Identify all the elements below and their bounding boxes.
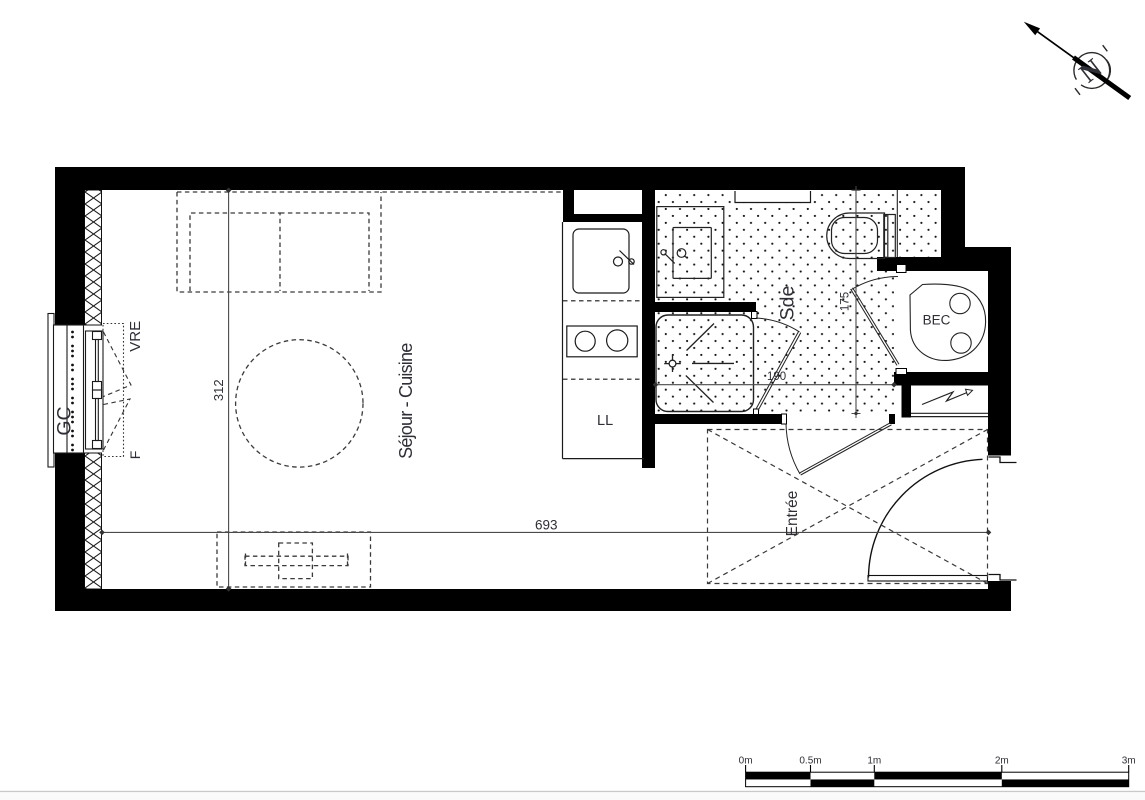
- svg-text:VRE: VRE: [127, 321, 144, 352]
- svg-text:1m: 1m: [867, 756, 881, 767]
- svg-text:190: 190: [767, 371, 786, 383]
- svg-text:Entrée: Entrée: [784, 491, 801, 537]
- svg-text:LL: LL: [597, 413, 613, 429]
- svg-text:2m: 2m: [995, 756, 1009, 767]
- svg-text:Séjour - Cuisine: Séjour - Cuisine: [396, 343, 416, 459]
- svg-text:693: 693: [535, 518, 558, 533]
- svg-text:312: 312: [211, 379, 226, 401]
- svg-text:GC: GC: [54, 406, 76, 435]
- svg-text:F: F: [127, 451, 143, 460]
- svg-text:BEC: BEC: [923, 313, 951, 328]
- svg-text:0.5m: 0.5m: [799, 756, 821, 767]
- svg-text:Sde: Sde: [777, 286, 799, 321]
- svg-text:3m: 3m: [1122, 756, 1136, 767]
- svg-text:175: 175: [840, 292, 852, 311]
- svg-text:0m: 0m: [739, 756, 753, 767]
